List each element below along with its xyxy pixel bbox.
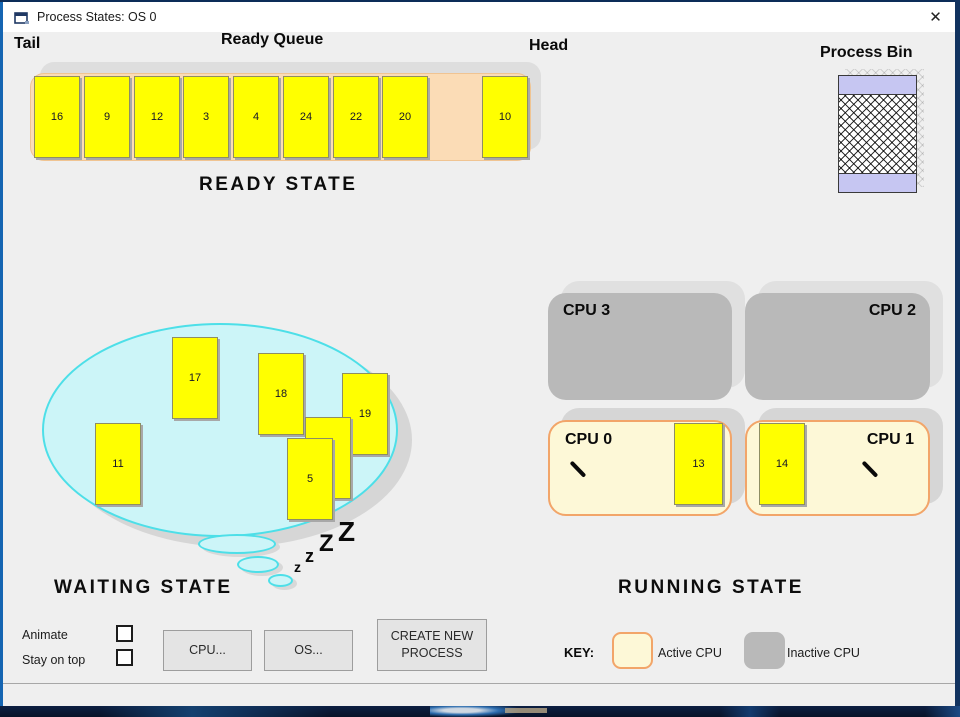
waiting-card-17: 17 xyxy=(172,337,218,419)
tail-label: Tail xyxy=(14,35,40,53)
cpu3-label: CPU 3 xyxy=(563,302,610,320)
stay-on-top-label: Stay on top xyxy=(22,653,85,667)
bubble-trail-small xyxy=(268,574,293,587)
cpu0-box: CPU 0 13 xyxy=(548,420,732,516)
sleep-z-icon: z xyxy=(294,560,301,574)
bottom-divider xyxy=(3,683,955,684)
cpu1-activity-spinner-icon xyxy=(862,461,879,478)
process-card-9: 9 xyxy=(84,76,130,158)
desktop-patch xyxy=(925,706,960,717)
window-border-left xyxy=(0,0,3,706)
form-icon xyxy=(14,10,30,26)
process-card-12: 12 xyxy=(134,76,180,158)
desktop-patch xyxy=(720,706,780,717)
active-cpu-swatch xyxy=(612,632,653,669)
running-card-13: 13 xyxy=(674,423,723,505)
close-button[interactable]: ✕ xyxy=(913,2,958,32)
process-card-4: 4 xyxy=(233,76,279,158)
cpu1-label: CPU 1 xyxy=(867,431,914,449)
window-border-right xyxy=(955,0,960,706)
bubble-trail-medium xyxy=(237,556,279,573)
active-cpu-key-label: Active CPU xyxy=(658,646,722,660)
process-card-20: 20 xyxy=(382,76,428,158)
waiting-card-5: 5 xyxy=(287,438,333,520)
running-state-label: RUNNING STATE xyxy=(618,577,804,599)
cpu0-activity-spinner-icon xyxy=(570,461,587,478)
sleep-z-icon: Z xyxy=(319,532,334,556)
running-card-14: 14 xyxy=(759,423,805,505)
waiting-card-18: 18 xyxy=(258,353,304,435)
create-new-process-button[interactable]: CREATE NEW PROCESS xyxy=(377,619,487,671)
process-card-10-head: 10 xyxy=(482,76,528,158)
stay-on-top-checkbox[interactable] xyxy=(116,649,133,666)
titlebar: Process States: OS 0 ✕ xyxy=(3,2,955,32)
cpu-settings-button[interactable]: CPU... xyxy=(163,630,252,671)
animate-label: Animate xyxy=(22,628,68,642)
cpu2-box: CPU 2 xyxy=(745,293,930,400)
inactive-cpu-swatch xyxy=(744,632,785,669)
window-title: Process States: OS 0 xyxy=(37,10,157,24)
app-window: Process States: OS 0 ✕ Tail Ready Queue … xyxy=(0,0,960,717)
cpu0-label: CPU 0 xyxy=(565,431,612,449)
os-settings-button[interactable]: OS... xyxy=(264,630,353,671)
process-bin xyxy=(838,75,917,193)
ready-state-label: READY STATE xyxy=(199,174,357,196)
ready-queue-label: Ready Queue xyxy=(221,31,323,49)
animate-checkbox[interactable] xyxy=(116,625,133,642)
sleep-z-icon: Z xyxy=(338,518,355,546)
cpu2-label: CPU 2 xyxy=(869,302,916,320)
cpu3-box: CPU 3 xyxy=(548,293,732,400)
process-bin-top-band xyxy=(839,76,916,95)
process-card-22: 22 xyxy=(333,76,379,158)
inactive-cpu-key-label: Inactive CPU xyxy=(787,646,860,660)
waiting-card-11: 11 xyxy=(95,423,141,505)
cpu1-box: CPU 1 14 xyxy=(745,420,930,516)
process-card-16: 16 xyxy=(34,76,80,158)
process-card-24: 24 xyxy=(283,76,329,158)
desktop-patch xyxy=(505,708,547,713)
desktop-background xyxy=(0,706,960,717)
process-bin-label: Process Bin xyxy=(820,44,912,62)
process-bin-bottom-band xyxy=(839,173,916,192)
process-card-3: 3 xyxy=(183,76,229,158)
ready-queue: 16 9 12 3 4 24 22 20 10 xyxy=(30,73,531,161)
bubble-trail-large xyxy=(198,534,276,554)
desktop-patch xyxy=(100,706,330,717)
head-label: Head xyxy=(529,37,568,55)
key-label: KEY: xyxy=(564,645,594,660)
waiting-state-label: WAITING STATE xyxy=(54,577,233,599)
sleep-z-icon: z xyxy=(305,547,314,565)
